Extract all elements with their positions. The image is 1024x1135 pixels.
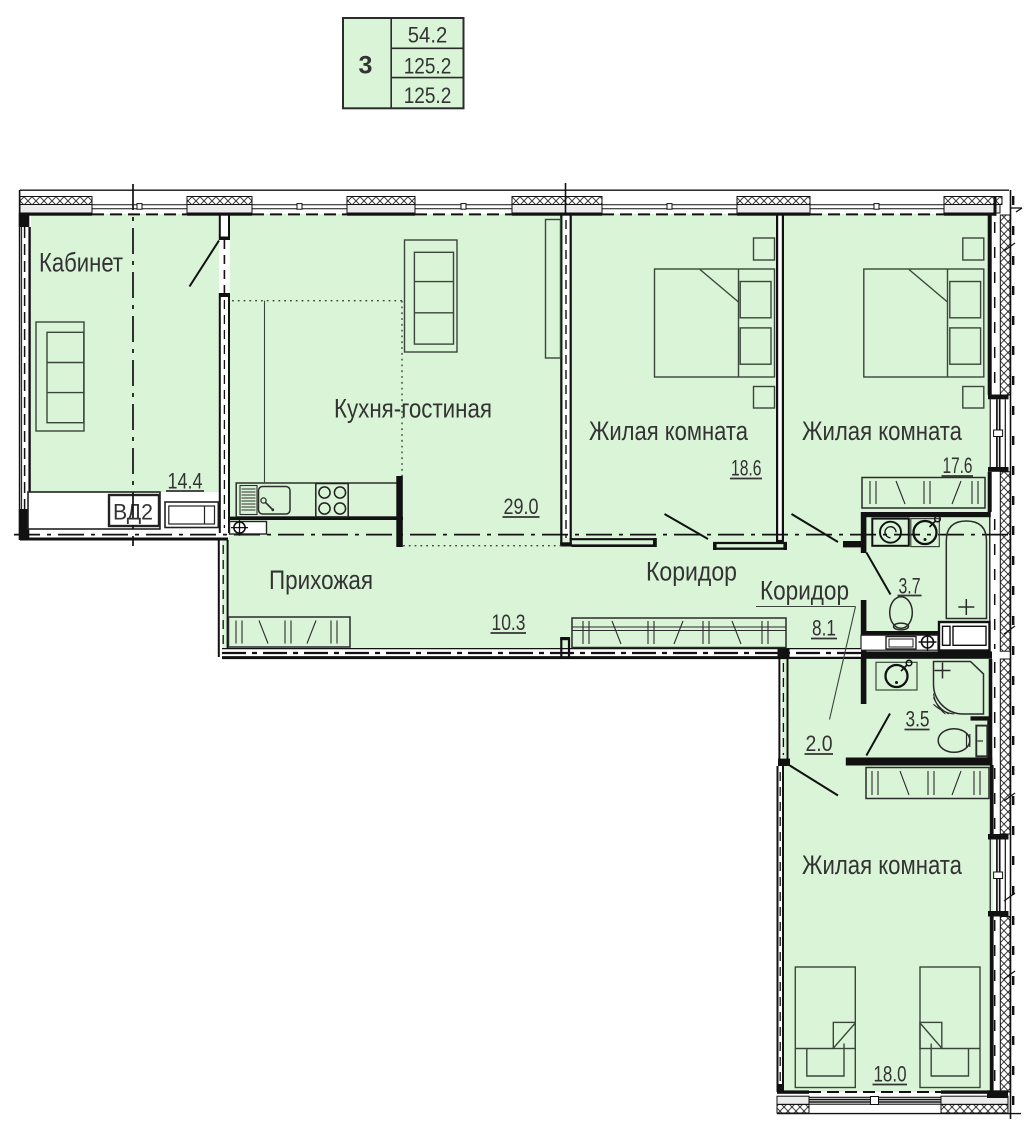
svg-text:29.0: 29.0 xyxy=(504,494,539,519)
svg-text:Жилая комната: Жилая комната xyxy=(802,416,962,446)
svg-text:Жилая комната: Жилая комната xyxy=(589,416,748,446)
svg-text:14.4: 14.4 xyxy=(168,469,203,494)
svg-text:3: 3 xyxy=(359,52,373,80)
svg-text:3.5: 3.5 xyxy=(906,707,930,732)
svg-text:2.0: 2.0 xyxy=(806,731,833,756)
svg-text:Кабинет: Кабинет xyxy=(39,248,123,278)
svg-text:Коридор: Коридор xyxy=(760,576,849,606)
svg-text:18.6: 18.6 xyxy=(731,456,762,481)
svg-text:54.2: 54.2 xyxy=(408,23,448,48)
svg-text:Коридор: Коридор xyxy=(646,557,737,587)
svg-text:125.2: 125.2 xyxy=(404,54,452,79)
svg-text:17.6: 17.6 xyxy=(943,453,973,478)
svg-text:125.2: 125.2 xyxy=(404,83,452,108)
svg-text:Кухня-гостиная: Кухня-гостиная xyxy=(334,394,492,424)
svg-text:10.3: 10.3 xyxy=(492,610,526,635)
svg-text:Прихожая: Прихожая xyxy=(269,565,373,595)
svg-text:8.1: 8.1 xyxy=(812,616,836,641)
svg-text:Жилая комната: Жилая комната xyxy=(802,850,962,880)
svg-text:18.0: 18.0 xyxy=(874,1062,907,1087)
